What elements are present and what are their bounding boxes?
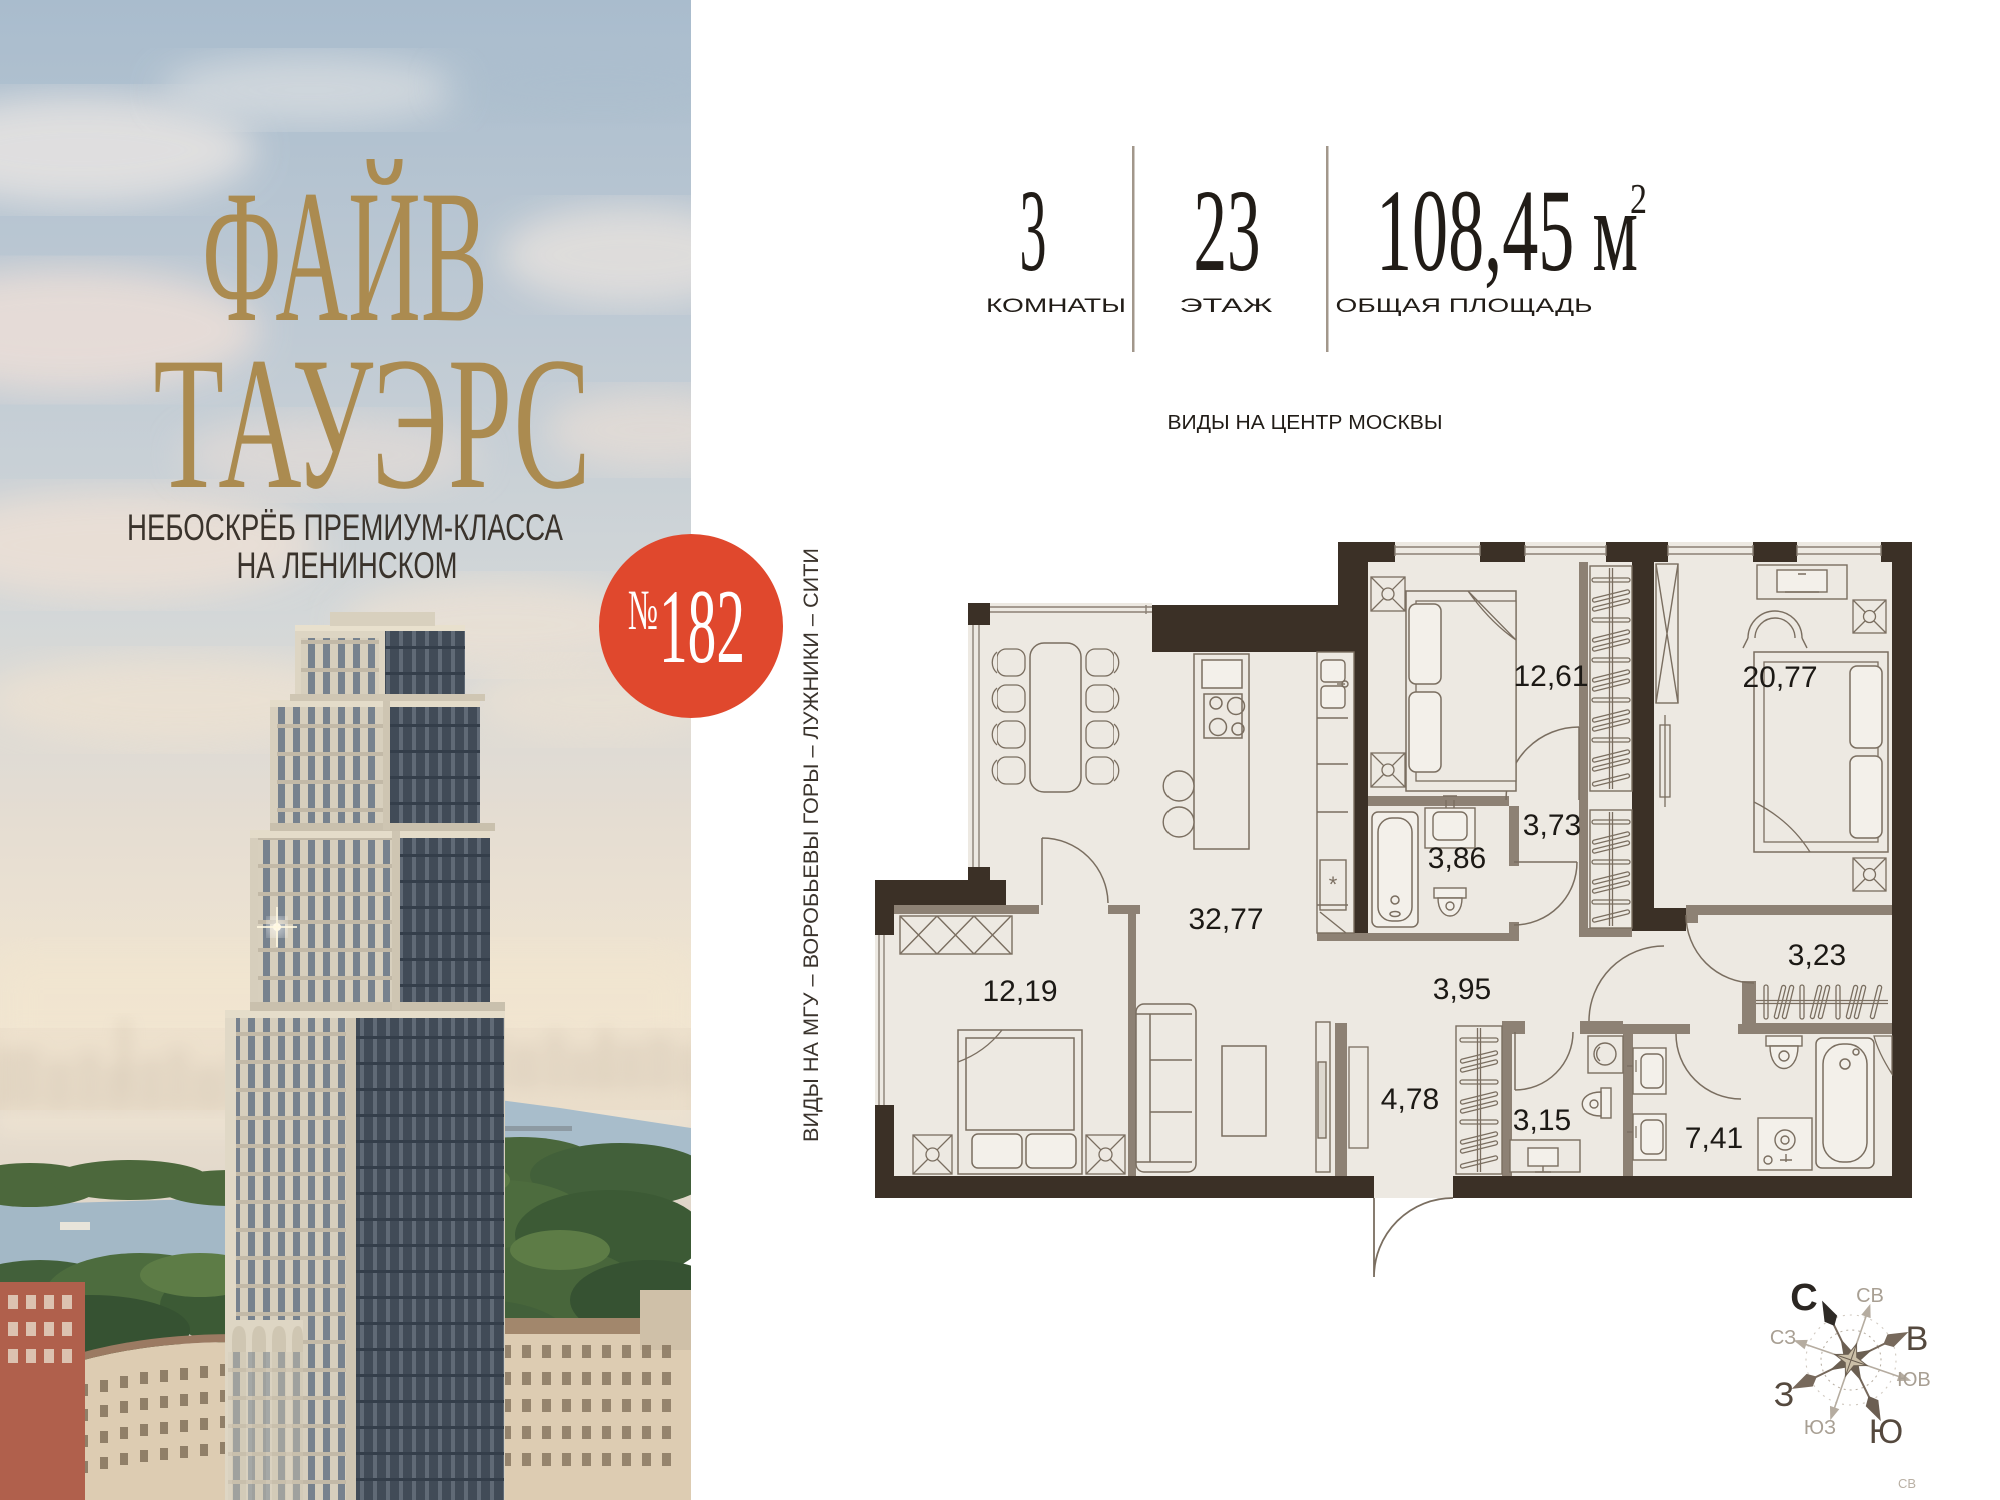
svg-text:*: * — [1329, 872, 1338, 897]
svg-text:3,73: 3,73 — [1523, 809, 1581, 842]
svg-text:3,95: 3,95 — [1433, 973, 1491, 1006]
svg-text:ЭТАЖ: ЭТАЖ — [1180, 296, 1274, 317]
svg-text:ЮВ: ЮВ — [1897, 1369, 1931, 1391]
svg-text:З: З — [1774, 1376, 1795, 1414]
svg-text:КОМНАТЫ: КОМНАТЫ — [986, 296, 1126, 317]
svg-text:32,77: 32,77 — [1188, 903, 1263, 936]
svg-text:108,45 м: 108,45 м — [1376, 165, 1638, 296]
svg-text:ЮЗ: ЮЗ — [1804, 1417, 1836, 1439]
svg-text:3,86: 3,86 — [1428, 842, 1486, 875]
svg-text:Ю: Ю — [1869, 1413, 1903, 1451]
svg-text:3,15: 3,15 — [1513, 1104, 1571, 1137]
svg-text:23: 23 — [1194, 165, 1261, 296]
svg-text:12,61: 12,61 — [1513, 660, 1588, 693]
svg-text:2: 2 — [1630, 177, 1647, 223]
svg-text:СЗ: СЗ — [1770, 1327, 1796, 1349]
svg-text:ТАУЭРС: ТАУЭРС — [154, 319, 591, 529]
svg-text:182: 182 — [659, 568, 745, 685]
svg-text:ВИДЫ НА ЦЕНТР МОСКВЫ: ВИДЫ НА ЦЕНТР МОСКВЫ — [1168, 412, 1443, 434]
svg-text:НА ЛЕНИНСКОМ: НА ЛЕНИНСКОМ — [237, 545, 458, 586]
svg-text:4,78: 4,78 — [1381, 1083, 1439, 1116]
svg-text:12,19: 12,19 — [982, 975, 1057, 1008]
svg-text:7,41: 7,41 — [1685, 1122, 1743, 1155]
svg-text:СВ: СВ — [1898, 1476, 1916, 1491]
svg-text:ВИДЫ НА МГУ – ВОРОБЬЕВЫ ГОРЫ –: ВИДЫ НА МГУ – ВОРОБЬЕВЫ ГОРЫ – ЛУЖНИКИ –… — [800, 548, 823, 1142]
svg-text:3: 3 — [1020, 165, 1047, 296]
svg-text:НЕБОСКРЁБ ПРЕМИУМ-КЛАССА: НЕБОСКРЁБ ПРЕМИУМ-КЛАССА — [127, 507, 563, 548]
svg-text:3,23: 3,23 — [1788, 939, 1846, 972]
svg-text:В: В — [1906, 1320, 1929, 1358]
svg-text:ОБЩАЯ ПЛОЩАДЬ: ОБЩАЯ ПЛОЩАДЬ — [1336, 296, 1593, 317]
svg-text:СВ: СВ — [1856, 1285, 1884, 1307]
svg-text:20,77: 20,77 — [1742, 661, 1817, 694]
svg-text:№: № — [628, 579, 658, 642]
svg-text:С: С — [1790, 1277, 1817, 1319]
